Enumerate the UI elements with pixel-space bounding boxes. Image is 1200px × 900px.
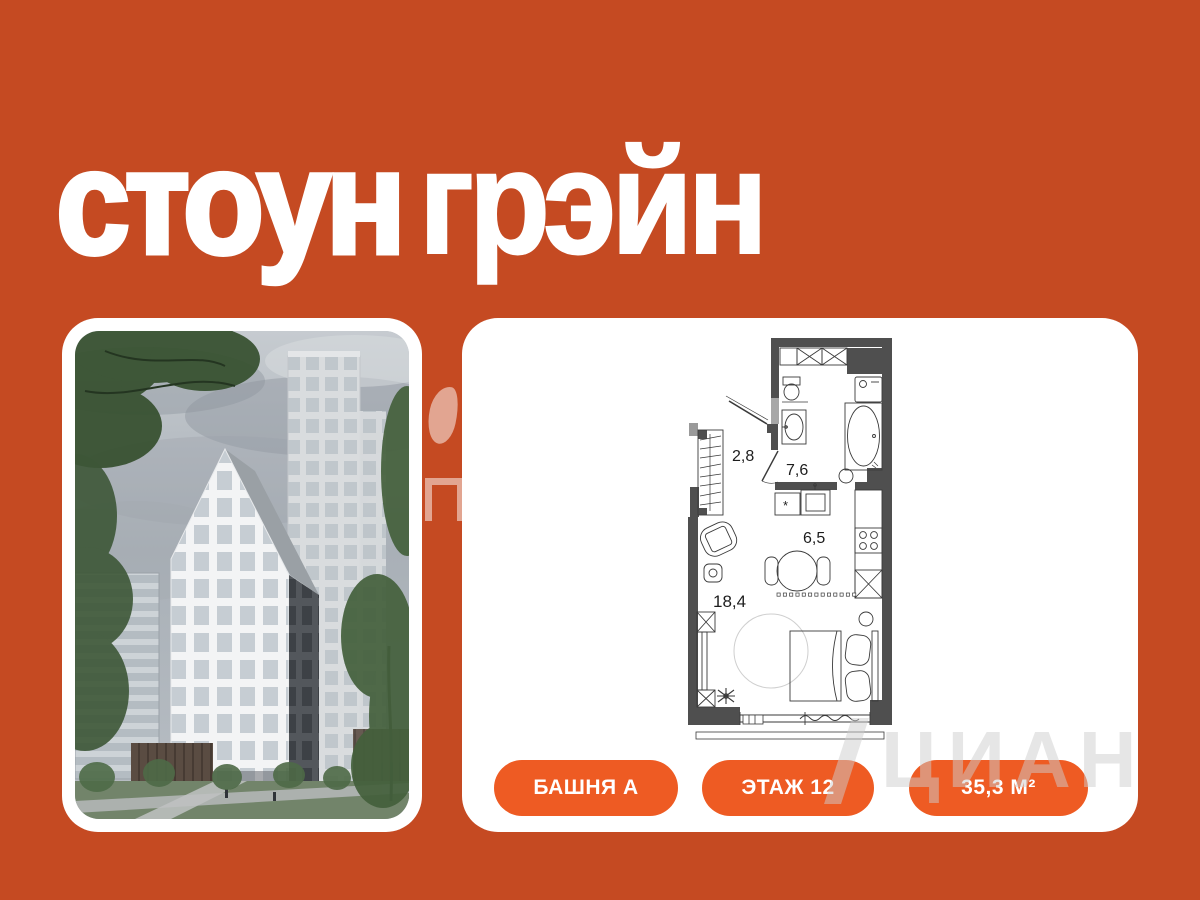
tower-badge-label: БАШНЯ А: [533, 776, 638, 800]
building-photo-card: [62, 318, 422, 832]
area-label-hallway: 2,8: [732, 448, 754, 465]
toilet: [782, 377, 808, 402]
area-badge[interactable]: 35,3 М²: [909, 760, 1088, 816]
bathroom-shelves: [780, 348, 847, 365]
floor-plan-card: *: [462, 318, 1138, 832]
watermark-fragment: [425, 478, 464, 521]
dining-table: [765, 551, 830, 591]
area-label-bathroom: 7,6: [786, 462, 808, 479]
wardrobe: [698, 430, 723, 515]
promo-page: стоунгрэйн: [0, 0, 1200, 900]
outer-sill: [696, 732, 884, 739]
building-render-illustration: [75, 331, 409, 819]
wall-light-segment: [771, 398, 779, 424]
curtain: [800, 716, 859, 721]
floor-badge-label: ЭТАЖ 12: [741, 776, 834, 800]
logo-word-grain: грэйн: [419, 120, 763, 285]
plant: [717, 688, 735, 704]
fridge: *: [775, 493, 800, 515]
svg-text:*: *: [783, 498, 788, 513]
bathroom-door: [762, 451, 778, 483]
area-label-kitchen: 6,5: [803, 530, 825, 547]
kitchen-counter: [855, 490, 882, 598]
building-photo: [75, 331, 409, 819]
bed: [790, 631, 878, 702]
floor-badge[interactable]: ЭТАЖ 12: [702, 760, 874, 816]
side-table: [704, 564, 722, 582]
left-storage: [697, 612, 715, 707]
wall-light-segment: [689, 423, 698, 436]
washing-machine: [855, 377, 882, 402]
logo-word-stoun: стоун: [56, 120, 401, 285]
armchair: [697, 518, 740, 560]
brand-logo: стоунгрэйн: [56, 129, 763, 277]
bathroom-sink: [782, 410, 806, 444]
bathroom-stool: [839, 469, 853, 483]
cabinet-hatched: [855, 570, 882, 598]
zone-divider-dots: [777, 593, 856, 596]
floor-plan: *: [688, 338, 892, 745]
tower-badge[interactable]: БАШНЯ А: [494, 760, 678, 816]
stove: [855, 528, 882, 553]
area-label-living-room: 18,4: [713, 592, 746, 611]
radiator: [743, 715, 763, 724]
watermark-fragment: [423, 384, 462, 447]
area-badge-label: 35,3 М²: [961, 776, 1036, 800]
entry-door: [726, 396, 768, 424]
bathtub: [845, 403, 882, 470]
bedside-lamp: [859, 612, 873, 626]
rug: [734, 614, 808, 688]
